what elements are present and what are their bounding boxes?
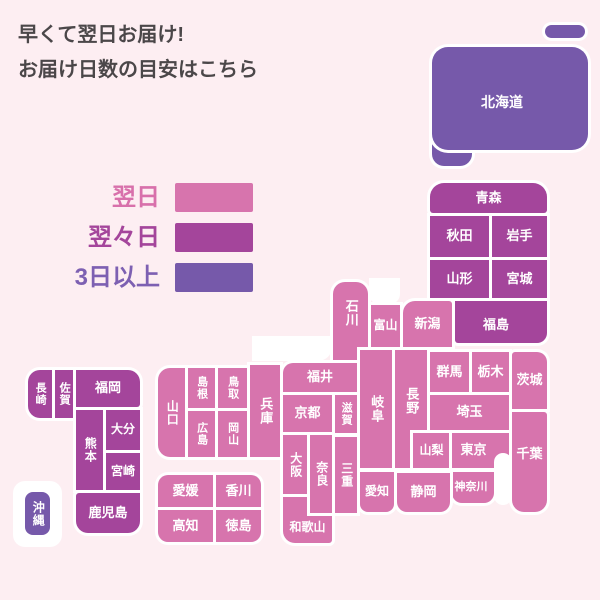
prefecture-label: 福島 (483, 318, 509, 333)
japan-map: 北海道青森秋田岩手山形宮城福島石川新潟富山福井岐阜長野山梨群馬栃木茨城埼玉東京千… (0, 0, 600, 600)
prefecture-label: 北海道 (481, 95, 523, 111)
prefecture-box: 熊本 (76, 410, 103, 490)
prefecture-box: 佐賀 (55, 370, 73, 418)
prefecture-box: 鹿児島 (76, 493, 140, 533)
prefecture-box: 山形 (430, 260, 489, 298)
prefecture-label: 沖縄 (31, 501, 44, 527)
prefecture-label: 山口 (165, 400, 178, 426)
prefecture-label: 福岡 (95, 381, 121, 396)
prefecture-box: 愛媛 (158, 475, 213, 507)
prefecture-label: 愛媛 (172, 484, 198, 499)
prefecture-box: 兵庫 (250, 365, 280, 457)
prefecture-box: 栃木 (472, 352, 509, 392)
prefecture-box: 埼玉 (430, 395, 509, 430)
prefecture-box: 三重 (335, 437, 357, 513)
prefecture-box: 福岡 (76, 370, 140, 407)
prefecture-label: 兵庫 (258, 397, 273, 425)
prefecture-box: 高知 (158, 510, 213, 542)
prefecture-box: 沖縄 (25, 492, 50, 535)
prefecture-label: 岩手 (506, 229, 532, 244)
prefecture-box: 石川 (333, 282, 368, 360)
island-shape (545, 25, 585, 38)
prefecture-label: 宮城 (506, 272, 532, 287)
prefecture-box: 福井 (283, 363, 357, 392)
delivery-info-banner[interactable]: 早くて翌日お届け! お届け日数の目安はこちら 翌日 翌々日 3日以上 北海道青森… (0, 0, 600, 600)
prefecture-box: 山口 (158, 368, 185, 457)
prefecture-label: 福井 (307, 370, 333, 385)
prefecture-label: 京都 (294, 406, 320, 421)
prefecture-label: 千葉 (516, 447, 542, 462)
prefecture-box: 静岡 (397, 473, 450, 512)
prefecture-label: 山形 (446, 272, 472, 287)
prefecture-box: 奈良 (310, 435, 332, 513)
prefecture-label: 神奈川 (455, 481, 488, 493)
prefecture-box: 岩手 (492, 216, 547, 257)
prefecture-label: 大分 (111, 423, 135, 436)
prefecture-box: 島根 (188, 368, 215, 408)
prefecture-label: 岐阜 (369, 395, 384, 423)
prefecture-box: 徳島 (216, 510, 261, 542)
prefecture-box: 宮崎 (106, 453, 140, 490)
prefecture-label: 三重 (339, 462, 352, 488)
prefecture-label: 石川 (343, 299, 358, 327)
prefecture-box: 新潟 (403, 301, 452, 347)
prefecture-label: 大阪 (288, 452, 301, 478)
prefecture-label: 鹿児島 (88, 506, 127, 521)
prefecture-label: 宮崎 (111, 465, 135, 478)
prefecture-box: 群馬 (430, 352, 469, 392)
prefecture-label: 山梨 (419, 444, 443, 457)
prefecture-box: 秋田 (430, 216, 489, 257)
sea-notch (494, 453, 512, 505)
prefecture-label: 徳島 (225, 519, 251, 534)
sea-notch (369, 278, 400, 304)
prefecture-label: 長野 (404, 387, 419, 415)
prefecture-label: 広島 (195, 422, 207, 446)
prefecture-label: 秋田 (446, 229, 472, 244)
prefecture-box: 福島 (455, 301, 547, 343)
prefecture-box: 鳥取 (218, 368, 247, 408)
prefecture-box: 茨城 (512, 352, 547, 409)
prefecture-label: 奈良 (314, 461, 327, 487)
prefecture-box: 広島 (188, 411, 215, 457)
prefecture-box: 神奈川 (452, 472, 494, 503)
prefecture-label: 和歌山 (289, 521, 325, 534)
prefecture-label: 東京 (460, 443, 486, 458)
prefecture-label: 高知 (172, 519, 198, 534)
prefecture-box: 大分 (106, 410, 140, 450)
prefecture-box: 香川 (216, 475, 261, 507)
prefecture-label: 長崎 (34, 382, 46, 406)
prefecture-box: 愛知 (360, 472, 394, 512)
prefecture-box: 宮城 (492, 260, 547, 298)
sea-notch (252, 336, 332, 361)
prefecture-label: 新潟 (414, 317, 440, 332)
prefecture-label: 青森 (475, 191, 501, 206)
prefecture-box: 長崎 (28, 370, 52, 418)
prefecture-label: 富山 (373, 319, 397, 332)
prefecture-box: 大阪 (283, 435, 307, 494)
prefecture-label: 茨城 (516, 373, 542, 388)
prefecture-label: 愛知 (365, 485, 389, 498)
prefecture-box: 北海道 (432, 47, 588, 150)
prefecture-box: 山梨 (413, 433, 450, 468)
prefecture-label: 静岡 (410, 485, 436, 500)
prefecture-label: 熊本 (83, 437, 96, 463)
prefecture-box: 青森 (430, 183, 547, 213)
prefecture-label: 滋賀 (340, 402, 352, 426)
prefecture-label: 栃木 (477, 365, 503, 380)
prefecture-label: 鳥取 (226, 376, 238, 400)
prefecture-box: 滋賀 (335, 395, 357, 433)
prefecture-box: 岐阜 (360, 350, 392, 468)
prefecture-label: 島根 (195, 376, 207, 400)
prefecture-label: 岡山 (226, 422, 238, 446)
prefecture-box: 京都 (283, 395, 332, 432)
prefecture-label: 群馬 (436, 365, 462, 380)
prefecture-box: 千葉 (512, 412, 547, 512)
prefecture-label: 佐賀 (58, 382, 70, 406)
prefecture-box: 岡山 (218, 411, 247, 457)
prefecture-box: 富山 (371, 305, 400, 347)
prefecture-label: 埼玉 (456, 405, 482, 420)
prefecture-label: 香川 (225, 484, 251, 499)
